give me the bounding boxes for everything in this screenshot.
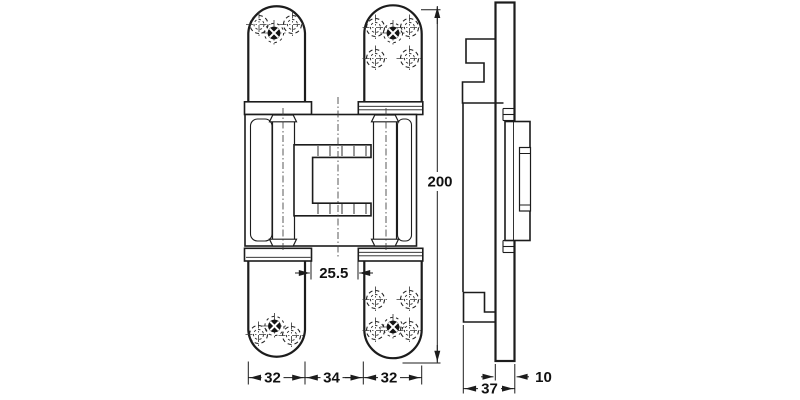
- top-right-flange: [358, 102, 423, 115]
- dimension-flange-gap: 25.5: [295, 262, 373, 283]
- pivot-collar: [372, 239, 399, 246]
- top-right-mounting-plate: [364, 5, 421, 102]
- dimension-bottom-row: 32 34 32: [248, 362, 421, 387]
- dimension-label-200: 200: [427, 174, 452, 191]
- latch-block: [520, 148, 531, 212]
- dimension-label-37: 37: [481, 381, 498, 398]
- dimension-label-25-5: 25.5: [319, 265, 348, 282]
- pivot-collar: [372, 115, 399, 122]
- front-view: [245, 5, 423, 358]
- dimension-label-32-left: 32: [264, 370, 281, 387]
- bottom-left-flange: [245, 248, 312, 261]
- bottom-right-mounting-plate: [364, 261, 421, 358]
- bottom-right-flange: [358, 248, 423, 261]
- dimension-label-10: 10: [535, 369, 552, 386]
- hinge-technical-drawing: 200 25.5 32 34 32: [0, 0, 800, 400]
- dimension-label-32-right: 32: [381, 370, 398, 387]
- top-left-flange: [245, 102, 312, 115]
- drawing-canvas: 200 25.5 32 34 32: [0, 0, 800, 400]
- top-left-mounting-plate: [248, 6, 305, 102]
- frame-step-bottom: [464, 293, 496, 323]
- hinge-body: [245, 97, 417, 257]
- side-view: [463, 3, 531, 362]
- dimension-label-34: 34: [323, 370, 340, 387]
